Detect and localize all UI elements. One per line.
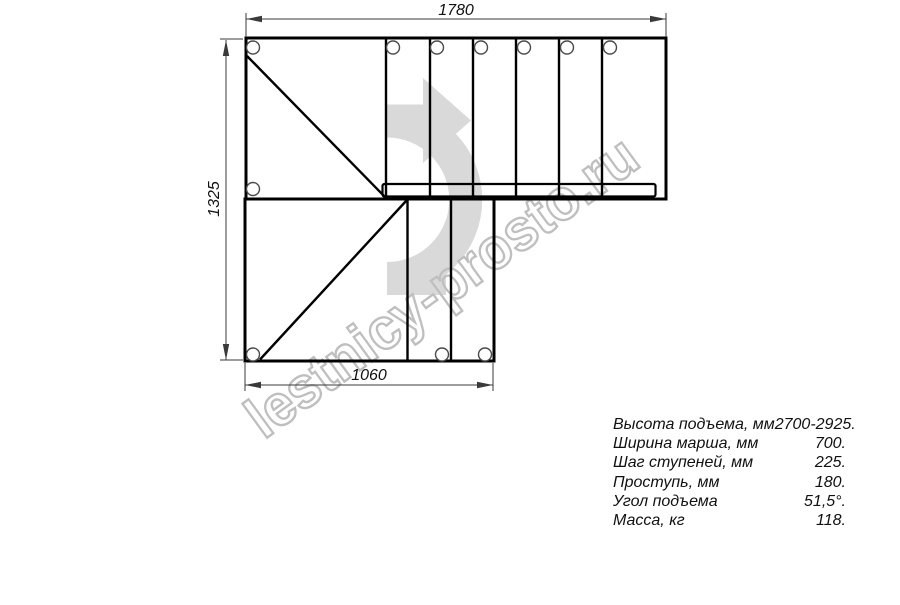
spec-value: 2700-2925.: [775, 415, 856, 434]
spec-value: 225.: [815, 453, 846, 472]
watermark-text: lestnicy-prosto.ru: [233, 123, 650, 451]
spec-row: Угол подъема 51,5°.: [613, 492, 846, 511]
post-hole-icon: [431, 41, 444, 54]
spec-row: Проступь, мм 180.: [613, 473, 846, 492]
post-hole-icon: [518, 41, 531, 54]
post-hole-icon: [604, 41, 617, 54]
dim-arrow-icon: [650, 16, 666, 22]
dimension-top: 1780: [246, 2, 666, 37]
spec-label: Шаг ступеней, мм: [613, 453, 753, 472]
landing-diagonal: [247, 56, 385, 197]
dim-arrow-icon: [223, 344, 229, 360]
spec-row: Ширина марша, мм 700.: [613, 434, 846, 453]
post-hole-icon: [436, 348, 449, 361]
spec-table: Высота подъема, мм 2700-2925. Ширина мар…: [613, 415, 846, 530]
post-hole-icon: [247, 348, 260, 361]
dimension-left: 1325: [206, 39, 243, 360]
post-hole-icon: [475, 41, 488, 54]
spec-label: Угол подъема: [613, 492, 718, 511]
spec-row: Шаг ступеней, мм 225.: [613, 453, 846, 472]
post-hole-icon: [387, 41, 400, 54]
spec-value: 51,5°.: [804, 492, 846, 511]
post-hole-icon: [479, 348, 492, 361]
post-hole-icon: [247, 183, 260, 196]
spec-label: Ширина марша, мм: [613, 434, 758, 453]
post-hole-icon: [247, 41, 260, 54]
dim-arrow-icon: [477, 382, 493, 388]
spec-label: Высота подъема, мм: [613, 415, 775, 434]
spec-row: Высота подъема, мм 2700-2925.: [613, 415, 846, 434]
dimension-bottom-value: 1060: [351, 367, 387, 384]
spec-label: Проступь, мм: [613, 473, 719, 492]
post-hole-icon: [561, 41, 574, 54]
spec-value: 700.: [815, 434, 846, 453]
stair-plan-canvas: lestnicy-prosto.ru: [0, 0, 900, 600]
dimension-top-value: 1780: [438, 2, 474, 19]
spec-row: Масса, кг 118.: [613, 511, 846, 530]
dim-arrow-icon: [246, 16, 262, 22]
dim-arrow-icon: [223, 40, 229, 56]
spec-label: Масса, кг: [613, 511, 685, 530]
spec-value: 118.: [816, 511, 846, 530]
spec-value: 180.: [815, 473, 846, 492]
dimension-left-value: 1325: [206, 181, 223, 217]
